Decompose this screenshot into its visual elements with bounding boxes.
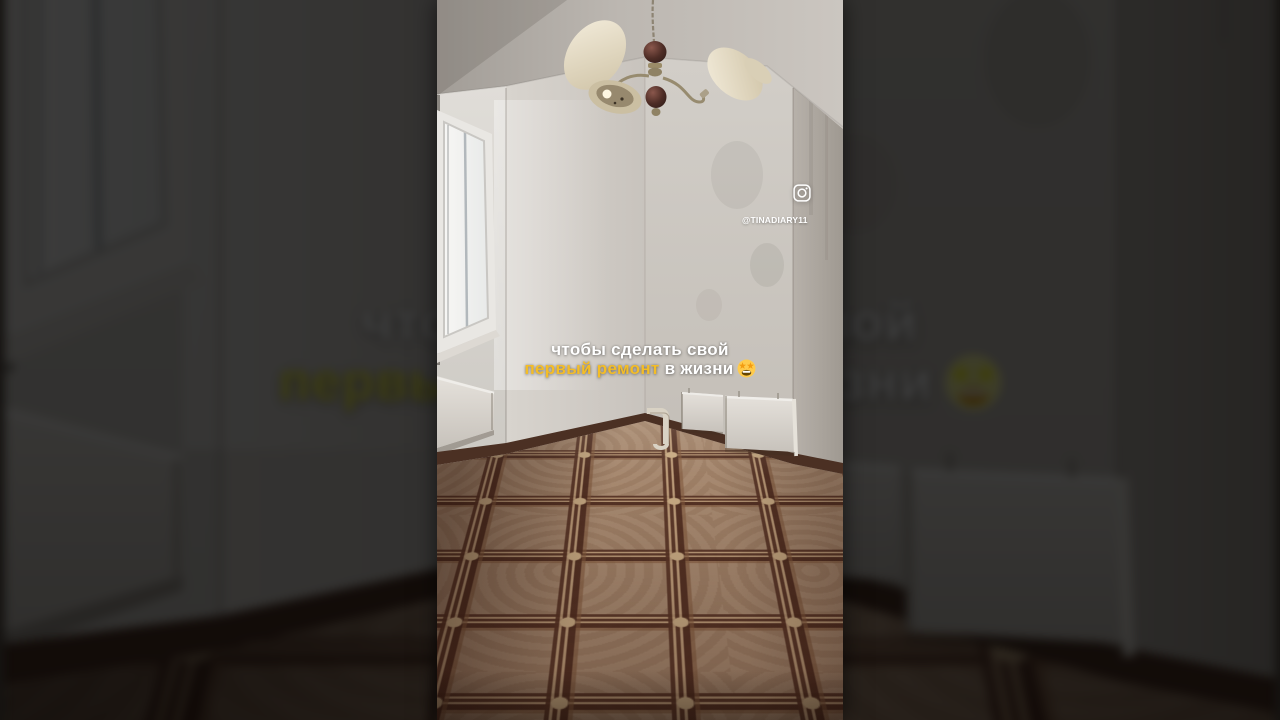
bg-star-struck-emoji-icon (942, 353, 1001, 412)
caption-highlight: первый ремонт (524, 359, 659, 378)
back-radiator-small (682, 388, 723, 435)
caption-rest: в жизни (660, 359, 734, 378)
watermark-handle: @TINADIARY11 (742, 215, 812, 225)
star-struck-emoji-icon (737, 359, 756, 378)
caption-overlay: чтобы сделать свой первый ремонт в жизни (437, 340, 843, 378)
caption-line-1: чтобы сделать свой (437, 340, 843, 359)
video-frame[interactable]: чтобы сделать свой первый ремонт в жизни… (437, 0, 843, 720)
back-radiator-large (725, 391, 796, 456)
caption-line-2: первый ремонт в жизни (437, 359, 843, 378)
instagram-icon (792, 183, 812, 203)
stage: чтобы сделать свой первый ремонт в жизни… (0, 0, 1280, 720)
window (437, 110, 500, 363)
bg-back-radiator-large (906, 453, 1128, 656)
